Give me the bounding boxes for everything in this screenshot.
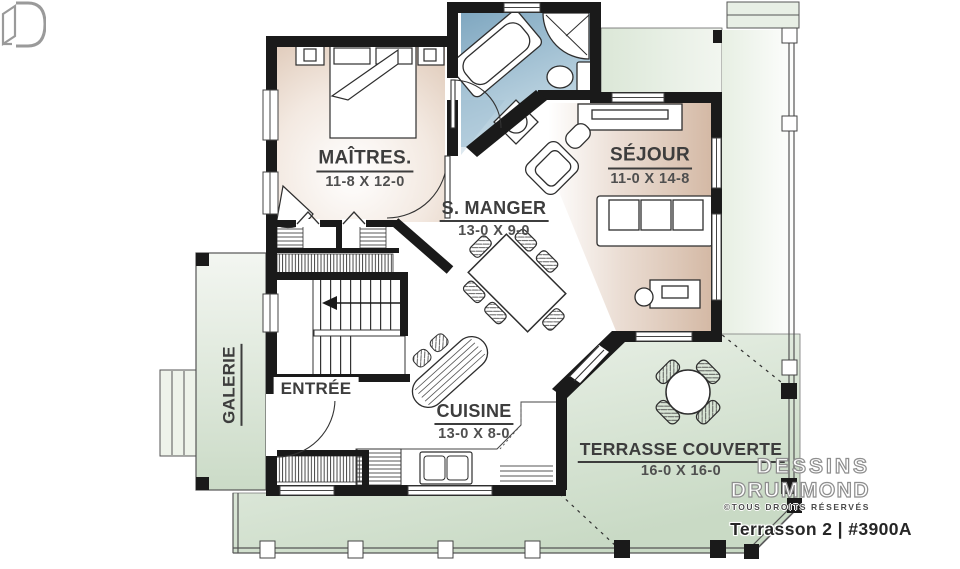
post-corner — [196, 253, 209, 266]
wall — [556, 386, 567, 490]
room-name: MAÎTRES. — [316, 148, 413, 173]
sofa-cushion — [609, 200, 639, 230]
floor-plan: MAÎTRES. 11-8 X 12-0 SÉJOUR 11-0 X 14-8 … — [0, 0, 960, 569]
pillow — [334, 48, 370, 64]
brand-logo-text: DESSINS DRUMMOND — [706, 455, 870, 502]
dims-dining-room: 13-0 X 9-0 — [458, 223, 530, 239]
wall — [447, 2, 458, 78]
room-name: GALERIE — [220, 344, 243, 426]
room-name: S. MANGER — [440, 198, 549, 222]
lamp — [424, 49, 436, 61]
patio-table — [666, 370, 710, 414]
stool — [428, 332, 450, 354]
stairs — [313, 277, 405, 376]
dims-living-room: 11-0 X 14-8 — [610, 171, 689, 187]
sofa-cushion — [673, 200, 703, 230]
label-gallery: GALERIE — [220, 344, 243, 426]
label-living-room: SÉJOUR — [608, 145, 692, 170]
post-corner — [196, 477, 209, 490]
toilet-tank — [577, 62, 592, 92]
bathroom-door-leaf — [451, 80, 455, 128]
wall — [362, 450, 369, 490]
porch-right — [722, 30, 800, 341]
entry-closet — [272, 456, 364, 482]
plan-title: Terrasson 2 | #3900A — [716, 519, 926, 540]
wall — [270, 450, 368, 456]
label-dining-room: S. MANGER — [440, 198, 549, 222]
dims-kitchen: 13-0 X 8-0 — [438, 426, 510, 442]
wall — [266, 36, 458, 47]
porch-steps — [727, 2, 799, 15]
wall — [400, 272, 408, 336]
tv — [592, 110, 668, 119]
room-name: ENTRÉE — [274, 377, 359, 401]
gallery-left — [160, 253, 266, 490]
wall — [590, 2, 601, 101]
desk-monitor — [662, 286, 688, 298]
copyright-text: ©TOUS DROITS RÉSERVÉS — [706, 502, 870, 512]
gallery-steps — [160, 370, 197, 456]
room-name: CUISINE — [434, 401, 513, 425]
stool — [411, 347, 433, 369]
desk-chair — [635, 288, 653, 306]
brand-line2: DRUMMOND — [706, 479, 870, 503]
wall — [266, 272, 408, 280]
label-kitchen: CUISINE — [434, 401, 513, 425]
porch-steps — [727, 15, 799, 28]
sofa-cushion — [641, 200, 671, 230]
lamp — [304, 49, 316, 61]
wall — [336, 222, 342, 250]
wall-diagonal — [395, 222, 450, 270]
front-door-swing — [277, 399, 335, 457]
label-master-bedroom: MAÎTRES. — [316, 148, 413, 173]
hanging-closet — [277, 254, 393, 273]
toilet-bowl — [547, 66, 573, 88]
room-name: SÉJOUR — [608, 145, 692, 170]
drummond-door-icon — [0, 0, 46, 50]
brand-line1: DESSINS — [706, 455, 870, 479]
dims-master-bedroom: 11-8 X 12-0 — [325, 174, 404, 190]
label-entry: ENTRÉE — [274, 377, 359, 401]
front-door-opening — [266, 394, 277, 456]
